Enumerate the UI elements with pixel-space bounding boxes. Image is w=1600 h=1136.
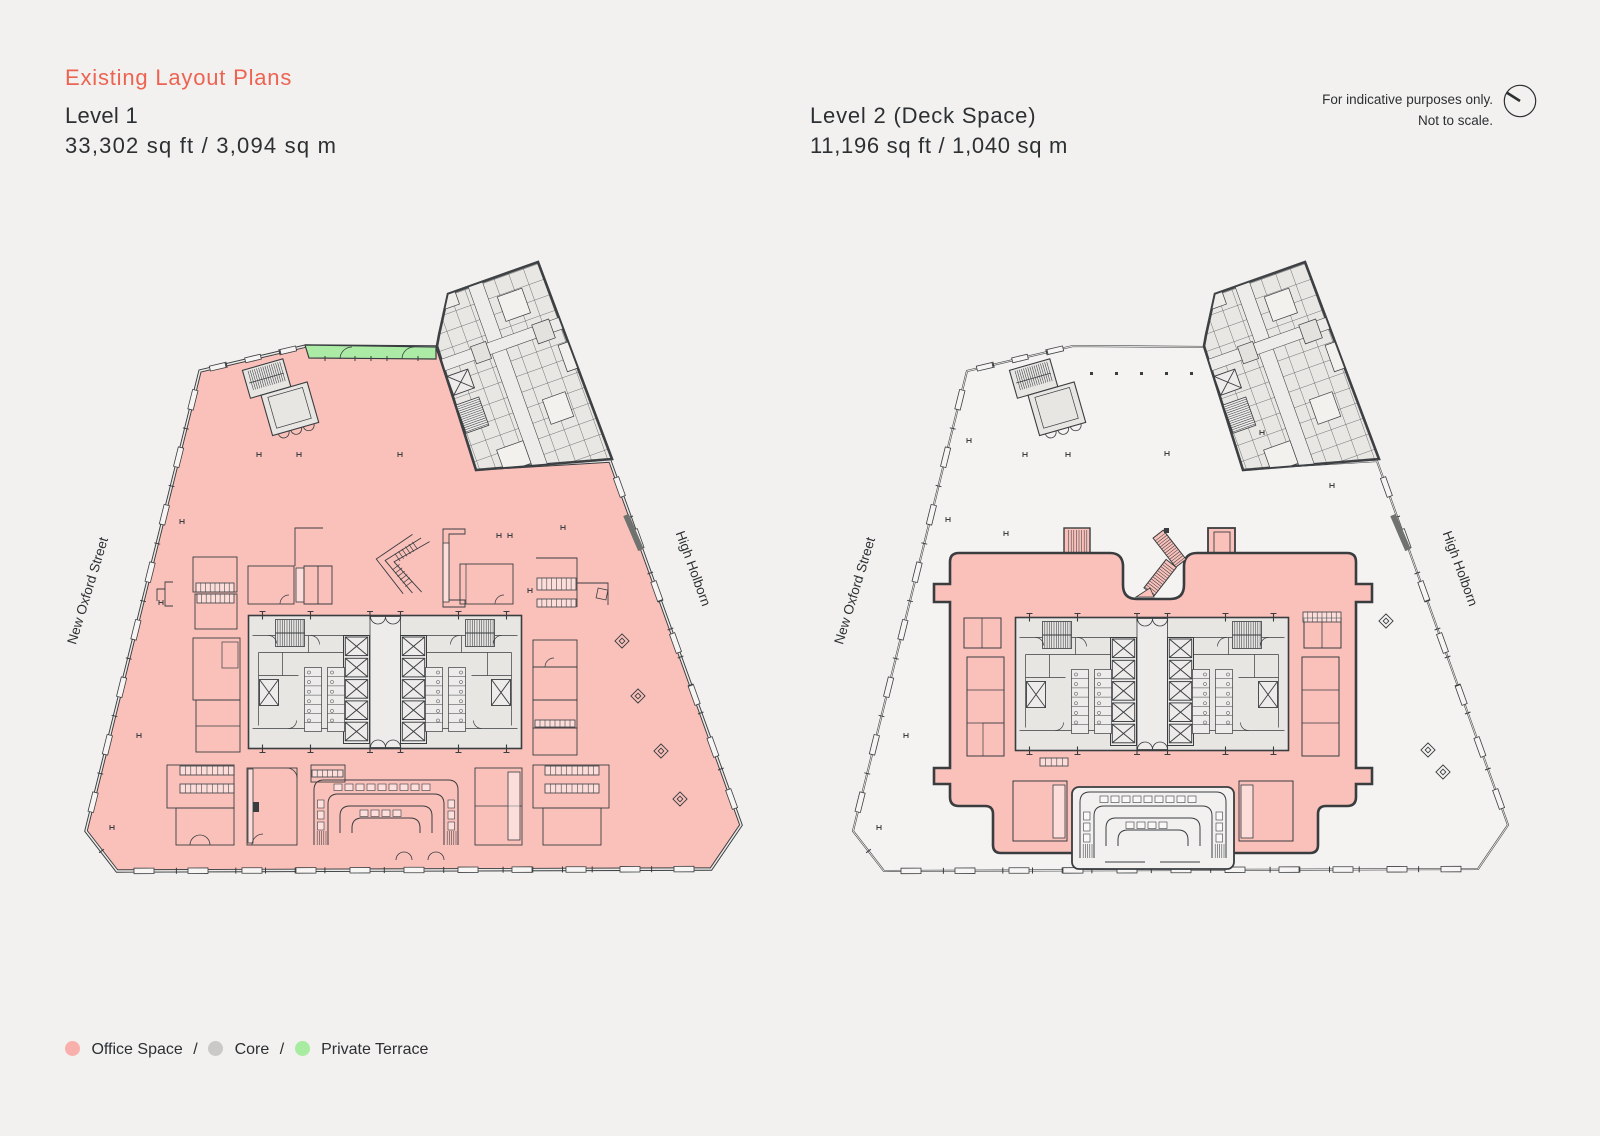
- svg-text:High Holborn: High Holborn: [673, 529, 714, 608]
- svg-text:New Oxford Street: New Oxford Street: [64, 535, 111, 646]
- svg-text:New Oxford Street: New Oxford Street: [831, 535, 878, 646]
- svg-text:High Holborn: High Holborn: [1440, 529, 1481, 608]
